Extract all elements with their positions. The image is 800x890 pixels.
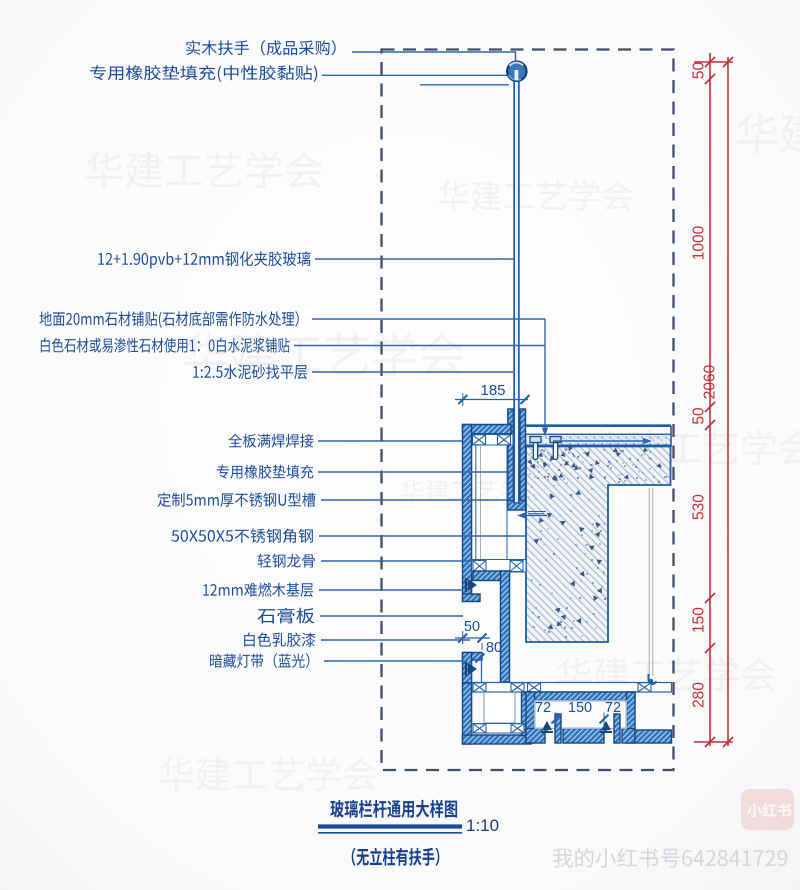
svg-text:1000: 1000	[691, 225, 708, 260]
svg-text:150: 150	[691, 607, 708, 633]
svg-text:50: 50	[464, 619, 480, 635]
svg-text:185: 185	[480, 382, 505, 399]
svg-text:72: 72	[605, 700, 621, 716]
svg-text:50: 50	[691, 407, 708, 425]
svg-text:2060: 2060	[702, 364, 719, 399]
svg-text:1:10: 1:10	[466, 816, 499, 835]
svg-text:72: 72	[535, 700, 551, 716]
svg-text:530: 530	[691, 494, 708, 520]
svg-text:280: 280	[691, 682, 708, 708]
svg-text:80: 80	[486, 640, 502, 656]
svg-text:50: 50	[691, 62, 708, 80]
svg-text:150: 150	[568, 700, 592, 716]
